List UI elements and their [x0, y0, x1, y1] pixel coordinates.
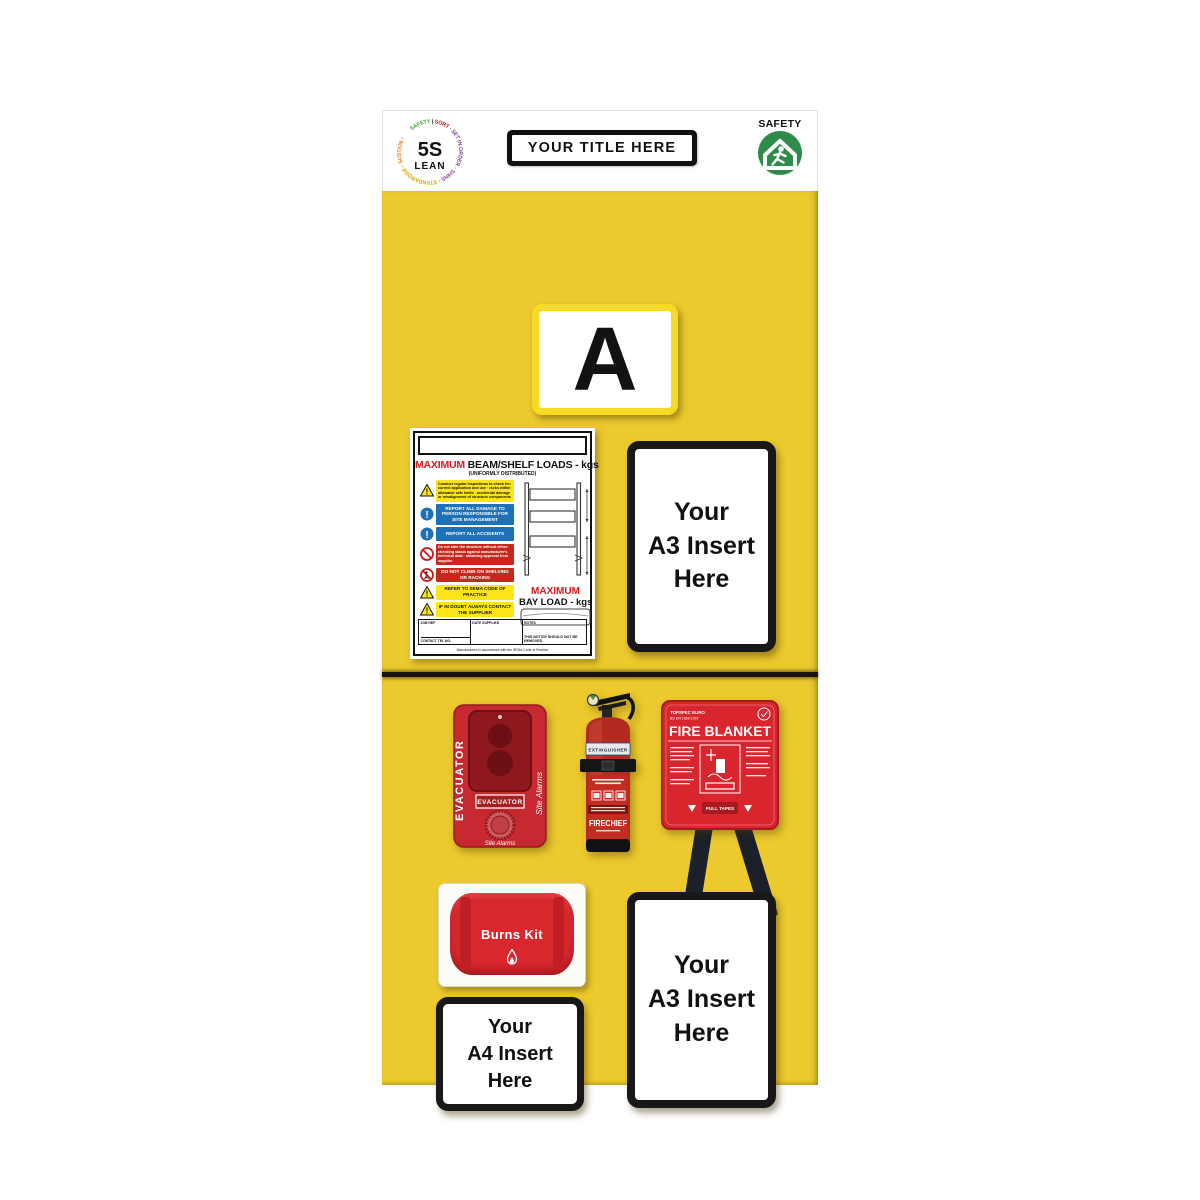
- rule-row: ! IF IN DOUBT ALWAYS CONTACT THE SUPPLIE…: [419, 602, 514, 617]
- load-notice-inner: MAXIMUM BEAM/SHELF LOADS - kgs (UNIFORML…: [413, 431, 592, 656]
- blanket-pull-label: PULL TAPES: [706, 806, 734, 811]
- extinguisher-brand: FIRECHIEF: [589, 818, 627, 828]
- rack-end-safety-board: SAFETY | SORT · SET IN ORDER · SHINE · S…: [382, 110, 818, 1085]
- title-text: YOUR TITLE HERE: [511, 134, 693, 162]
- footer-cell-notes: NOTES THIS NOTICE SHOULD NOT BE REMOVED: [523, 620, 586, 644]
- bay-letter: A: [573, 315, 638, 405]
- logo-5s-text: 5S: [418, 139, 442, 161]
- title-insert-box: YOUR TITLE HERE: [507, 130, 697, 166]
- bay-load-title: MAXIMUM: [519, 587, 592, 598]
- warning-triangle-icon: !: [419, 480, 434, 502]
- rule-row: ! REPORT ALL DAMAGE TO PERSON RESPONSIBL…: [419, 504, 514, 525]
- blanket-spec-line2: BS EN 1869:1997: [670, 717, 699, 721]
- rule-row: DO NOT CLIMB ON SHELVING OR RACKING: [419, 568, 514, 583]
- evacuator-bottom-script: Site Alarms: [485, 841, 515, 847]
- board-yellow-panel: A MAXIMUM BEAM/SHELF LOADS - kgs (UNIFOR…: [382, 191, 818, 1085]
- product-photo-safety-shadow-board: SAFETY | SORT · SET IN ORDER · SHINE · S…: [0, 0, 1200, 1200]
- blanket-title: FIRE BLANKET: [669, 724, 772, 739]
- rack-diagram: [519, 480, 592, 580]
- svg-text:!: !: [425, 510, 428, 521]
- rule-row: ! Conduct regular inspections to check f…: [419, 480, 514, 502]
- load-notice-subtitle: (UNIFORMLY DISTRIBUTED): [415, 471, 590, 477]
- warning-triangle-icon: !: [419, 585, 434, 600]
- rule-row: ! REFER TO SEMA CODE OF PRACTICE: [419, 585, 514, 600]
- a3-insert-frame-top: Your A3 Insert Here: [627, 441, 776, 652]
- evacuator-brand-script: Site Alarms: [534, 771, 544, 815]
- prohibition-circle-icon: [419, 544, 434, 566]
- emergency-exit-icon: [757, 130, 803, 176]
- warning-triangle-icon: !: [419, 602, 434, 617]
- svg-text:!: !: [425, 488, 428, 497]
- fire-extinguisher: EXTINGUISHER FIRECHIEF: [572, 687, 644, 859]
- bay-letter-box: A: [532, 304, 678, 415]
- evacuator-alarm: EVACUATOR Site Alarms EVACUATOR Site Ala…: [452, 703, 548, 849]
- rack-diagram-column: MAXIMUM BAY LOAD - kgs: [519, 480, 592, 632]
- board-divider: [382, 672, 818, 677]
- a4-insert-text: Your A4 Insert Here: [467, 1014, 553, 1095]
- rule-row: Do not alter the structure without eithe…: [419, 544, 514, 566]
- 5s-lean-logo: SAFETY | SORT · SET IN ORDER · SHINE · S…: [391, 113, 469, 191]
- load-notice-rules: ! Conduct regular inspections to check f…: [419, 480, 514, 619]
- evacuator-panel-label: EVACUATOR: [477, 799, 523, 806]
- svg-text:!: !: [425, 589, 428, 598]
- safety-badge: SAFETY: [751, 118, 809, 181]
- load-notice-footer-table: JOB REF CONTACT TEL NO. DATE SUPPLIED NO…: [418, 619, 587, 645]
- safety-badge-label: SAFETY: [751, 118, 809, 130]
- svg-text:!: !: [425, 607, 428, 616]
- footer-cell-jobref: JOB REF CONTACT TEL NO.: [419, 620, 471, 644]
- mandatory-circle-icon: !: [419, 527, 434, 541]
- a3-insert-frame-bottom: Your A3 Insert Here: [627, 892, 776, 1108]
- load-notice-poster: MAXIMUM BEAM/SHELF LOADS - kgs (UNIFORML…: [410, 428, 595, 659]
- a3-insert-top-text: Your A3 Insert Here: [648, 496, 755, 597]
- burns-kit-label: Burns Kit: [450, 927, 574, 942]
- load-notice-small-print: Manufactured in accordance with the SEMA…: [415, 648, 590, 652]
- load-notice-title: MAXIMUM BEAM/SHELF LOADS - kgs: [415, 459, 590, 471]
- svg-text:!: !: [425, 530, 428, 541]
- burns-kit: Burns Kit: [438, 883, 586, 987]
- evacuator-side-label: EVACUATOR: [454, 740, 466, 821]
- fire-blanket: TOPSPEC EURO BS EN 1869:1997 FIRE BLANKE…: [660, 699, 780, 833]
- a3-insert-bottom-text: Your A3 Insert Here: [648, 949, 755, 1050]
- a4-insert-frame: Your A4 Insert Here: [436, 997, 584, 1111]
- blanket-spec-line1: TOPSPEC EURO: [670, 710, 705, 715]
- footer-cell-date: DATE SUPPLIED: [471, 620, 523, 644]
- extinguisher-band-label: EXTINGUISHER: [588, 748, 628, 753]
- burns-kit-case: Burns Kit: [450, 893, 574, 975]
- mandatory-circle-icon: !: [419, 504, 434, 525]
- rule-row: ! REPORT ALL ACCIDENTS: [419, 527, 514, 541]
- load-notice-blank-header: [418, 436, 587, 455]
- no-climbing-icon: [419, 568, 434, 583]
- logo-lean-text: LEAN: [414, 161, 445, 172]
- board-header: SAFETY | SORT · SET IN ORDER · SHINE · S…: [382, 110, 818, 191]
- bay-load-title2: BAY LOAD - kgs: [519, 598, 592, 608]
- flame-icon: [505, 949, 519, 967]
